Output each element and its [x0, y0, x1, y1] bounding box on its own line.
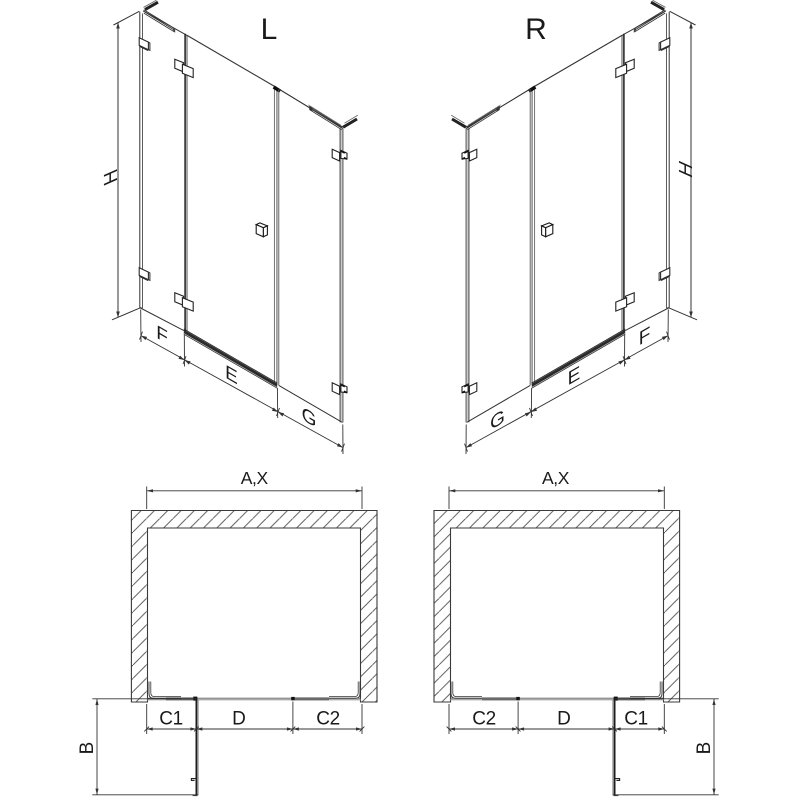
svg-text:B: B [694, 742, 715, 755]
svg-text:C2: C2 [472, 709, 496, 730]
svg-text:C1: C1 [624, 709, 648, 730]
svg-text:R: R [525, 13, 547, 46]
svg-text:L: L [261, 13, 278, 46]
svg-text:A,X: A,X [241, 468, 269, 488]
svg-text:D: D [557, 709, 571, 730]
svg-text:C2: C2 [316, 709, 340, 730]
svg-text:D: D [232, 709, 246, 730]
svg-text:A,X: A,X [542, 468, 570, 488]
svg-text:C1: C1 [159, 709, 183, 730]
svg-text:B: B [77, 742, 98, 755]
